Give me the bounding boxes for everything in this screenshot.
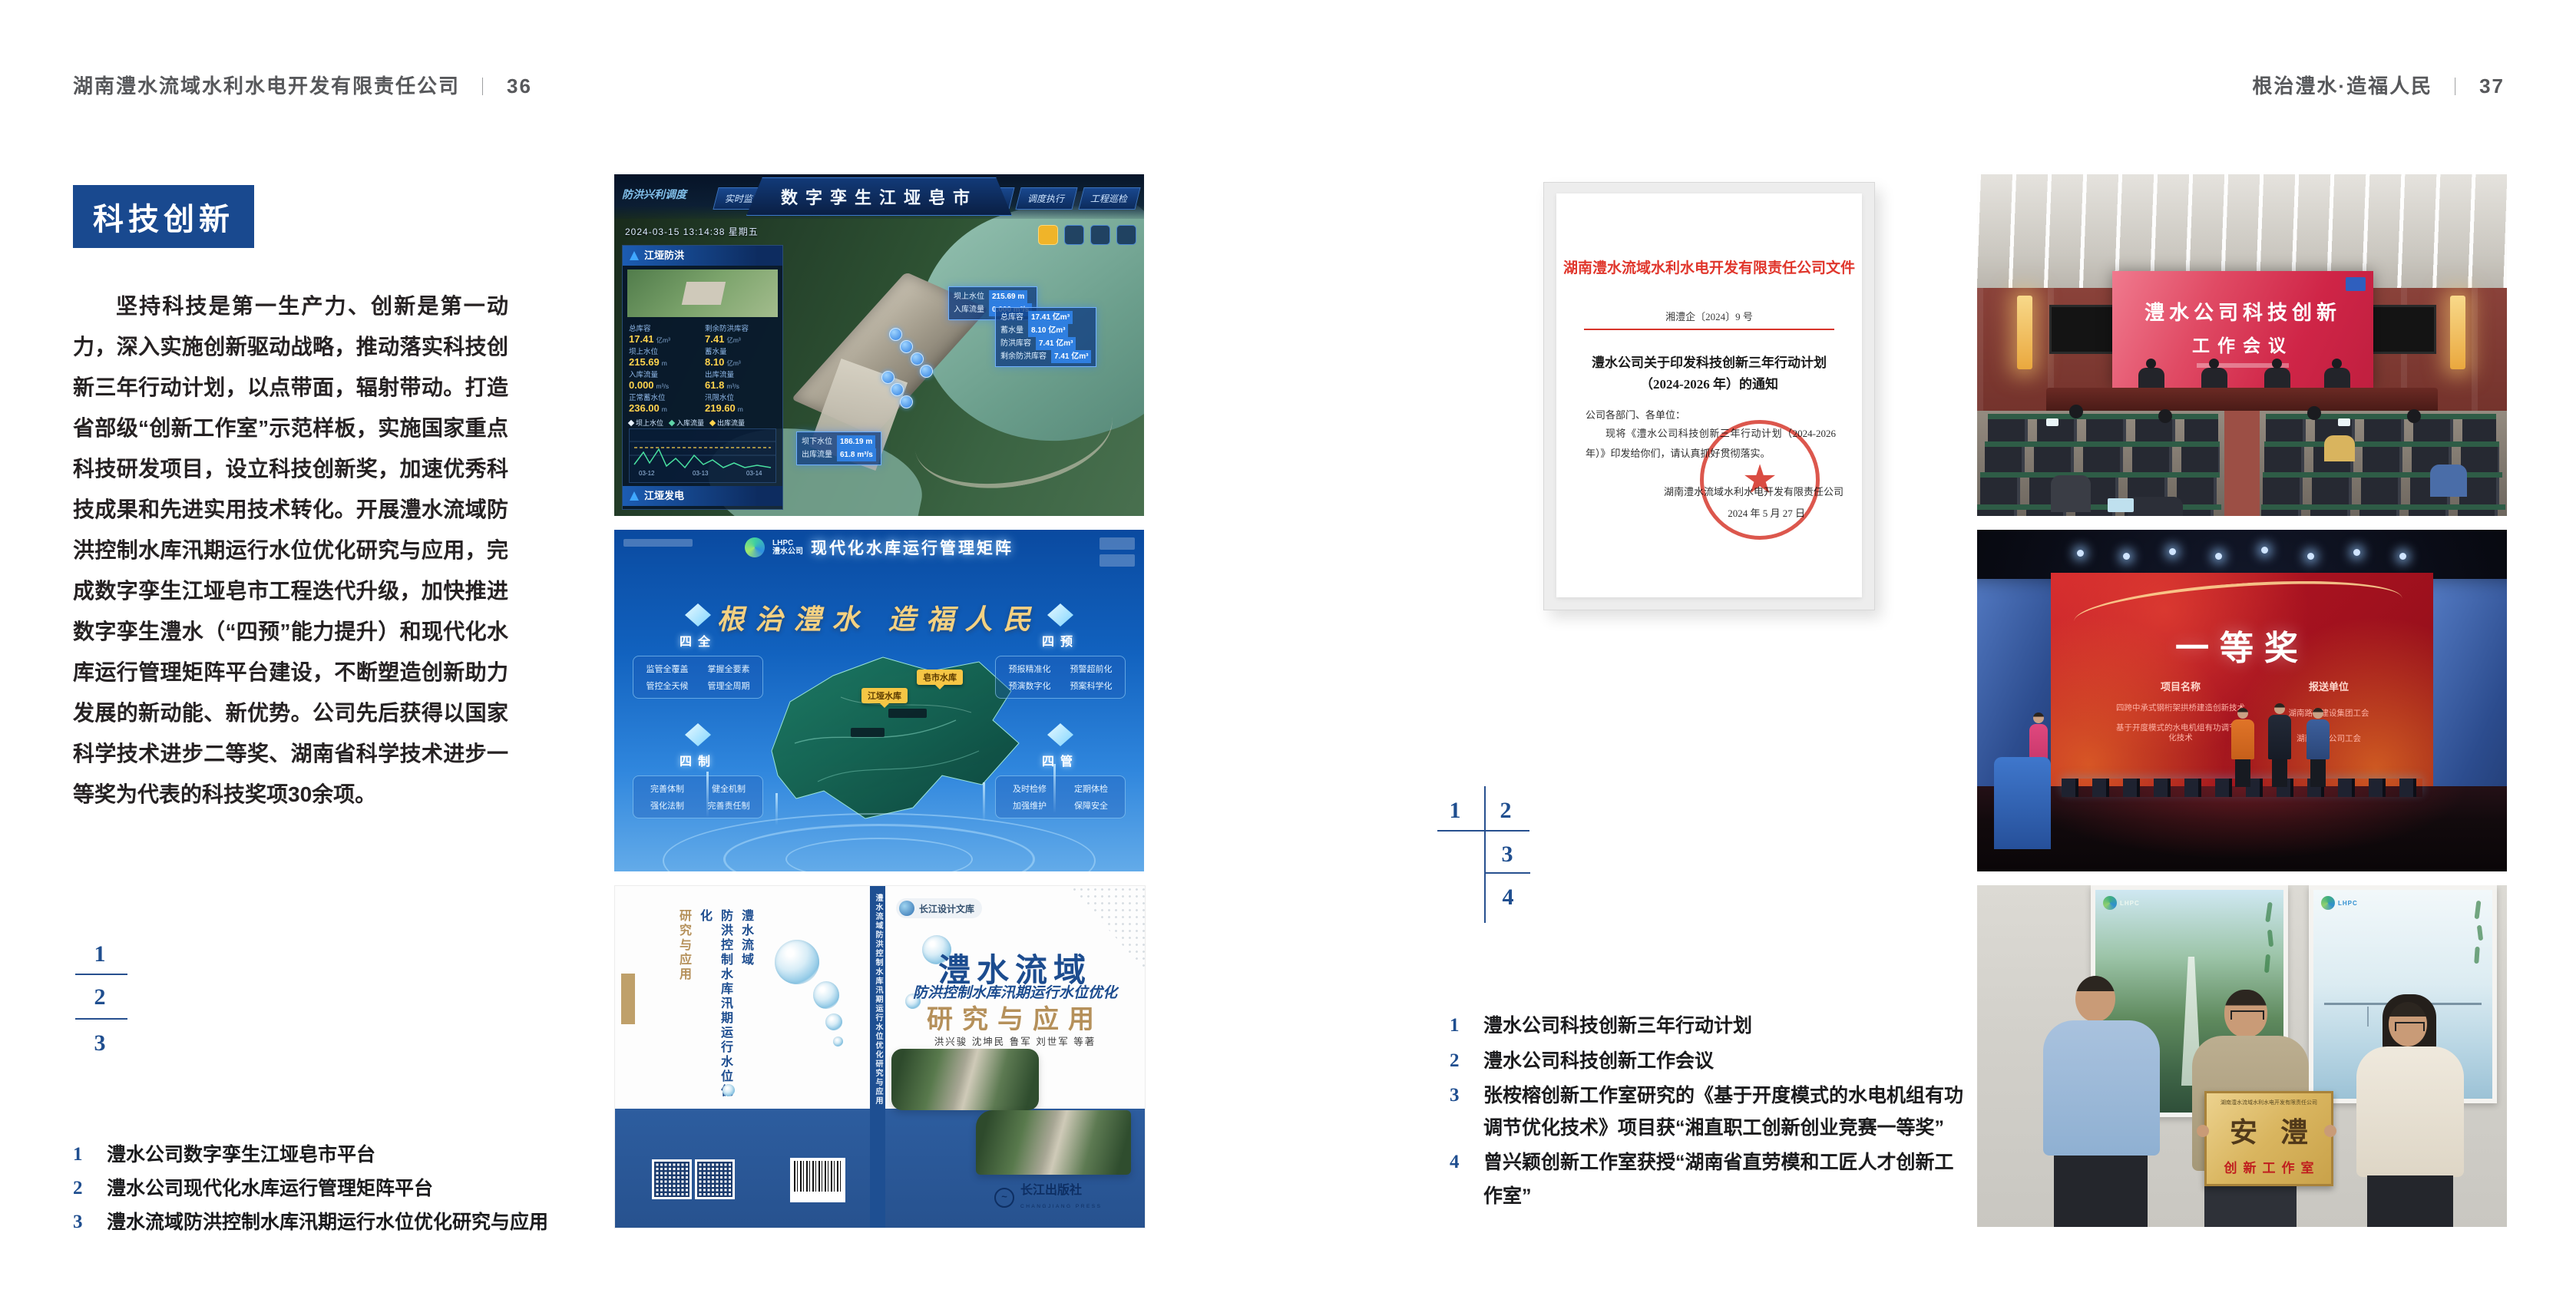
attendee-head xyxy=(2407,409,2421,423)
attendee-head xyxy=(2307,406,2321,420)
user-icon xyxy=(1038,225,1058,245)
figure-index-1: 1 xyxy=(77,941,123,967)
header-divider: ｜ xyxy=(2432,77,2479,97)
changjiang-design-logo-icon xyxy=(899,901,914,916)
flood-panel: 江垭防洪 总库容17.41亿m³ 剩余防洪库容7.41亿m³ 坝上水位215.6… xyxy=(622,245,783,510)
document-title-line2: （2024-2026 年）的通知 xyxy=(1556,373,1862,392)
seat-row xyxy=(1985,441,2220,473)
svg-text:03-14: 03-14 xyxy=(746,470,762,477)
panel-title: 江垭防洪 xyxy=(623,246,782,266)
index-divider xyxy=(75,974,127,975)
figure-plaque-photo: LHPC LHPC 湖南澧水流域水利水电开发有限责任公司 xyxy=(1977,885,2507,1227)
running-head-left: 湖南澧水流域水利水电开发有限责任公司｜36 xyxy=(73,71,532,99)
gate-marker xyxy=(900,340,913,353)
panel-siquan: 四全 监管全覆盖掌握全要素 管控全天候管理全周期 xyxy=(633,603,763,699)
panel-icon xyxy=(685,723,711,746)
caption-row: 1澧水公司科技创新三年行动计划 xyxy=(1450,1009,1969,1043)
wall-lamp xyxy=(2450,296,2465,369)
qr-code xyxy=(695,1159,735,1199)
panel-siguan: 四管 及时检修定期体检 加强维护保障安全 xyxy=(995,723,1126,818)
plaque-header: 湖南澧水流域水利水电开发有限责任公司 xyxy=(2207,1099,2331,1106)
timestamp: 2024-03-15 13:14:38 星期五 xyxy=(625,225,759,238)
water-droplet xyxy=(833,1037,843,1046)
attendee-head xyxy=(2069,405,2083,418)
figure-index-4: 4 xyxy=(1491,884,1525,911)
panel-icon xyxy=(1047,603,1073,627)
body-paragraph: 坚持科技是第一生产力、创新是第一动力，深入实施创新驱动战略，推动落实科技创新三年… xyxy=(73,286,508,815)
running-head-right: 根治澧水·造福人民｜37 xyxy=(2252,71,2505,99)
water-level-chart: 03-12 03-13 03-14 xyxy=(629,428,776,483)
caption-row: 2澧水公司现代化水库运行管理矩阵平台 xyxy=(73,1172,580,1205)
alarm-icon xyxy=(1116,225,1136,245)
water-droplet xyxy=(825,1013,842,1030)
wall-tv xyxy=(2367,305,2436,354)
document-page: 湖南澧水流域水利水电开发有限责任公司文件 湘澧企〔2024〕9 号 澧水公司关于… xyxy=(1556,193,1862,597)
figure-index-2: 2 xyxy=(1489,798,1523,824)
tab: 工程巡检 xyxy=(1078,187,1140,210)
seat-row xyxy=(2266,414,2496,442)
document-title-line1: 澧水公司关于印发科技创新三年行动计划 xyxy=(1556,352,1862,371)
lhpc-logo-icon: LHPC xyxy=(2103,896,2140,910)
button-chip xyxy=(1100,554,1135,567)
gate-marker xyxy=(881,371,894,384)
back-cover-title: 澧水流域 防洪控制水库汛期运行水位优化 研究与应用 xyxy=(673,909,756,1113)
caption-list-left: 1澧水公司数字孪生江垭皂市平台 2澧水公司现代化水库运行管理矩阵平台 3澧水流域… xyxy=(73,1138,580,1239)
seat-row xyxy=(2261,504,2505,516)
small-station-label xyxy=(851,728,885,737)
small-station-label xyxy=(888,709,927,718)
figure-award-photo: 一等奖 项目名称 四跨中承式钢桁架拱桥建造创新技术 基于开度模式的水电机组有功调… xyxy=(1977,530,2507,871)
publisher: ~ 长江出版社 CHANGJIANG PRESS xyxy=(994,1184,1102,1212)
tab: 调度执行 xyxy=(1015,187,1077,210)
plaque-subtitle: 创新工作室 xyxy=(2207,1157,2331,1176)
rostrum-table xyxy=(2046,388,2438,411)
project-column: 项目名称 四跨中承式钢桁架拱桥建造创新技术 基于开度模式的水电机组有功调节优化技… xyxy=(2115,679,2246,743)
awardee-blue xyxy=(2304,708,2332,787)
attendee-blue xyxy=(2430,465,2467,497)
book-title-tail: 研究与应用 xyxy=(885,998,1145,1036)
index-divider xyxy=(1484,872,1530,874)
attendee-head xyxy=(2158,409,2172,423)
wall-lamp xyxy=(2017,296,2032,369)
document-red-header: 湖南澧水流域水利水电开发有限责任公司文件 xyxy=(1556,256,1862,277)
paper xyxy=(2046,418,2058,426)
page-number-right: 37 xyxy=(2479,74,2505,98)
seat-row xyxy=(1988,414,2218,442)
page-number-left: 36 xyxy=(507,74,532,98)
back-tan-tab xyxy=(621,974,635,1024)
attendee xyxy=(2128,497,2183,516)
man-left-shirt xyxy=(2043,1020,2160,1156)
speaker xyxy=(2201,368,2227,388)
panel-icon xyxy=(685,603,711,627)
gate-marker xyxy=(911,352,924,365)
plaque-title: 安澧 xyxy=(2207,1110,2331,1150)
logo-chip xyxy=(2346,277,2366,291)
screen-title-line1: 澧水公司科技创新 xyxy=(2112,297,2373,326)
awardee-orange xyxy=(2229,708,2257,787)
man-left-pants xyxy=(2054,1156,2148,1227)
series-badge: 长江设计文库 xyxy=(896,898,982,918)
man-left-head xyxy=(2075,976,2115,1022)
caption-row: 4曾兴颖创新工作室获授“湖南省直劳模和工匠人才创新工作室” xyxy=(1450,1146,1969,1213)
toolbar-icons xyxy=(1038,225,1136,245)
section-title-badge: 科技创新 xyxy=(73,185,254,248)
screen-title-line2: 工作会议 xyxy=(2112,331,2373,357)
reservoir-tooltip: 总库容17.41 亿m³ 蓄水量8.10 亿m³ 防洪库容7.41 亿m³ 剩余… xyxy=(995,307,1096,367)
lhpc-logo-icon xyxy=(745,537,765,557)
panel-sizhi: 四制 完善体制健全机制 强化法制完善责任制 xyxy=(633,723,763,818)
podium xyxy=(1994,757,2051,849)
map-marker-zaoshi: 皂市水库 xyxy=(917,670,963,685)
panel-siyu: 四预 预报精准化预警超前化 预演数字化预案科学化 xyxy=(995,603,1126,699)
seat-row xyxy=(1980,472,2220,507)
qr-code xyxy=(652,1159,692,1199)
water-droplet xyxy=(775,940,819,984)
caption-list-right: 1澧水公司科技创新三年行动计划 2澧水公司科技创新工作会议 3张桉榕创新工作室研… xyxy=(1450,1009,1969,1213)
lhpc-logo-icon: LHPC xyxy=(2321,896,2358,910)
dam-thumbnail xyxy=(627,269,778,317)
wall-tv xyxy=(2049,305,2118,354)
caption-row: 3澧水流域防洪控制水库汛期运行水位优化研究与应用 xyxy=(73,1205,580,1239)
gate-marker xyxy=(891,383,904,396)
platform-header: LHPC澧水公司 现代化水库运行管理矩阵 xyxy=(745,536,1014,559)
figure-meeting-photo: 澧水公司科技创新 工作会议 xyxy=(1977,174,2507,516)
speaker xyxy=(2264,368,2290,388)
index-divider xyxy=(1484,786,1486,923)
caption-row: 1澧水公司数字孪生江垭皂市平台 xyxy=(73,1138,580,1172)
speaker xyxy=(2138,368,2164,388)
flood-stats: 总库容17.41亿m³ 剩余防洪库容7.41亿m³ 坝上水位215.69m 蓄水… xyxy=(623,321,782,415)
book-authors: 洪兴骏 沈坤民 鲁军 刘世军 等著 xyxy=(885,1033,1145,1048)
gate-marker xyxy=(900,395,913,408)
red-rule xyxy=(1584,329,1834,330)
water-droplet xyxy=(813,981,839,1009)
stage-floor xyxy=(1977,786,2507,871)
man-middle-head xyxy=(2224,990,2267,1037)
tissue-box xyxy=(2108,498,2134,512)
index-divider xyxy=(1437,830,1529,832)
header-divider: ｜ xyxy=(460,77,507,97)
panel-title: 江垭发电 xyxy=(623,486,782,506)
dam-photo xyxy=(976,1110,1131,1175)
innovation-workshop-plaque: 湖南澧水流域水利水电开发有限责任公司 安澧 创新工作室 xyxy=(2204,1091,2333,1186)
mode-label: 防洪兴利调度 xyxy=(622,187,686,202)
center-aisle xyxy=(2224,411,2260,516)
chart-legend: 坝上水位 入库流量 出库流量 xyxy=(623,415,782,428)
company-name: 湖南澧水流域水利水电开发有限责任公司 xyxy=(73,74,460,98)
figure-book-cover: 澧水流域 防洪控制水库汛期运行水位优化 研究与应用 澧水流域防洪控制水库汛期运行… xyxy=(614,885,1146,1228)
figure-digital-twin-screenshot: 防洪兴利调度 实时监测 洪水预报 防洪预警 态势预测 预案生成 调度执行 工程巡… xyxy=(614,174,1144,516)
spine-title: 澧水流域防洪控制水库汛期运行水位优化研究与应用 xyxy=(870,894,885,1216)
barcode xyxy=(790,1158,845,1202)
figure-index-1: 1 xyxy=(1438,798,1472,824)
speaker xyxy=(2324,368,2350,388)
hand xyxy=(2197,1125,2209,1137)
layers-icon xyxy=(1064,225,1084,245)
figure-official-document: 湖南澧水流域水利水电开发有限责任公司文件 湘澧企〔2024〕9 号 澧水公司关于… xyxy=(1543,182,1875,610)
brand-cn: 澧水公司 xyxy=(772,547,803,556)
button-chip xyxy=(1100,537,1135,550)
attendee-yellow xyxy=(2324,435,2355,461)
locate-icon xyxy=(1090,225,1110,245)
figure-matrix-platform-screenshot: LHPC澧水公司 现代化水库运行管理矩阵 根治澧水 造福人民 皂市水库 江垭水库… xyxy=(614,530,1144,871)
caption-row: 3张桉榕创新工作室研究的《基于开度模式的水电机组有功调节优化技术》项目获“湘直职… xyxy=(1450,1080,1969,1144)
gate-marker xyxy=(920,365,933,378)
brochure-spread: 湖南澧水流域水利水电开发有限责任公司｜36 根治澧水·造福人民｜37 科技创新 … xyxy=(0,0,2576,1306)
publisher-logo-icon: ~ xyxy=(994,1188,1014,1208)
power-stats: 年发电计划6.3000亿kWh 年累计发电量1.2907亿kWh 月累计发电量3… xyxy=(623,506,782,510)
front-cover: 长江设计文库 澧水流域 防洪控制水库汛期运行水位优化 研究与应用 洪兴骏 沈坤民… xyxy=(885,886,1145,1228)
panel-icon xyxy=(1047,723,1073,746)
water-droplet xyxy=(723,1084,735,1096)
caption-row: 2澧水公司科技创新工作会议 xyxy=(1450,1044,1969,1078)
index-divider xyxy=(75,1018,127,1020)
brand-en: LHPC xyxy=(772,539,793,547)
woman-head xyxy=(2389,1002,2427,1046)
woman-shirt xyxy=(2356,1046,2464,1177)
seat-row xyxy=(1977,504,2221,516)
attendee xyxy=(2051,475,2091,512)
figure-index-3: 3 xyxy=(1490,841,1524,868)
map-marker-jiangya: 江垭水库 xyxy=(861,688,908,703)
dam-photo xyxy=(891,1049,1039,1110)
hand xyxy=(2324,1125,2336,1137)
downstream-tooltip: 坝下水位186.19 m 出库流量61.8 m³/s xyxy=(796,431,881,465)
prize-title: 一等奖 xyxy=(2051,620,2433,670)
slogan: 根治澧水·造福人民 xyxy=(2252,74,2432,98)
svg-text:03-13: 03-13 xyxy=(693,470,709,477)
figure-index-2: 2 xyxy=(77,984,123,1010)
figure-index-3: 3 xyxy=(77,1030,123,1056)
presenter-suit xyxy=(2266,703,2293,787)
salutation: 公司各部门、各单位： xyxy=(1586,405,1685,425)
platform-title: 现代化水库运行管理矩阵 xyxy=(811,536,1014,559)
dashboard-title: 数字孪生江垭皂市 xyxy=(746,177,1012,216)
company-seal: ★ xyxy=(1700,420,1820,540)
datetime-chip xyxy=(623,539,693,547)
svg-text:03-12: 03-12 xyxy=(639,470,655,477)
woman-pants xyxy=(2367,1175,2453,1227)
document-number: 湘澧企〔2024〕9 号 xyxy=(1556,309,1862,323)
gate-marker xyxy=(889,328,902,341)
paper xyxy=(2338,418,2350,426)
